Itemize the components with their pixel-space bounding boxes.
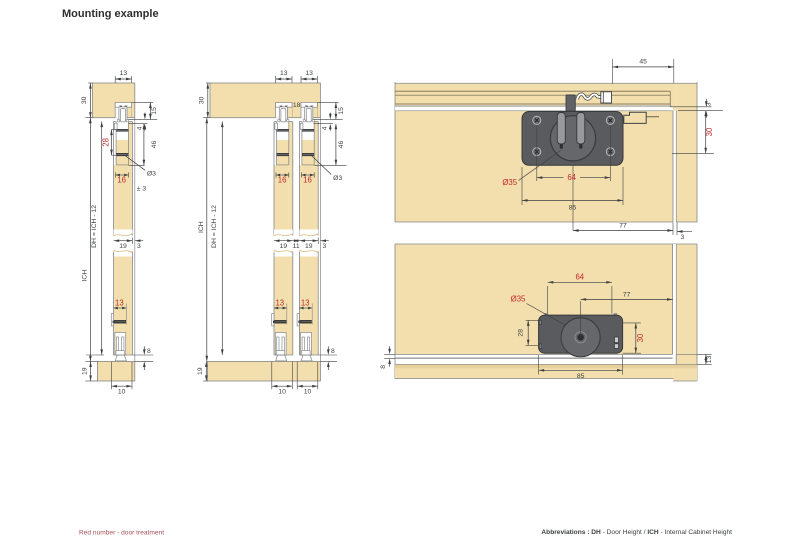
svg-text:DH = ICH - 12: DH = ICH - 12 xyxy=(91,205,98,248)
svg-text:13: 13 xyxy=(301,298,310,307)
svg-text:77: 77 xyxy=(619,222,627,229)
svg-text:30: 30 xyxy=(636,333,645,342)
svg-text:64: 64 xyxy=(575,272,584,281)
svg-text:11: 11 xyxy=(293,243,300,250)
svg-text:13: 13 xyxy=(115,298,124,307)
svg-text:4: 4 xyxy=(322,126,329,130)
svg-text:15: 15 xyxy=(338,107,345,115)
svg-text:4: 4 xyxy=(136,126,143,130)
svg-text:3: 3 xyxy=(323,243,327,250)
svg-text:19: 19 xyxy=(197,367,204,375)
svg-text:19: 19 xyxy=(119,243,127,250)
svg-text:13: 13 xyxy=(706,355,713,363)
svg-text:DH = ICH - 12: DH = ICH - 12 xyxy=(211,205,218,248)
svg-text:28: 28 xyxy=(517,329,524,337)
svg-text:85: 85 xyxy=(577,373,585,380)
svg-text:16: 16 xyxy=(117,176,126,185)
svg-text:85: 85 xyxy=(569,204,577,211)
svg-text:13: 13 xyxy=(120,70,128,77)
svg-text:16: 16 xyxy=(303,176,312,185)
svg-text:46: 46 xyxy=(338,141,345,149)
svg-text:10: 10 xyxy=(304,389,312,396)
svg-text:18: 18 xyxy=(293,102,301,109)
svg-text:10: 10 xyxy=(278,389,286,396)
svg-text:Abbreviations : DH - Door Heig: Abbreviations : DH - Door Height / ICH -… xyxy=(541,529,732,536)
svg-text:13: 13 xyxy=(275,298,284,307)
svg-text:10: 10 xyxy=(118,389,126,396)
svg-text:46: 46 xyxy=(151,141,158,149)
svg-text:8: 8 xyxy=(331,348,335,355)
svg-text:8: 8 xyxy=(147,348,151,355)
svg-text:64: 64 xyxy=(567,173,576,182)
svg-text:± 3: ± 3 xyxy=(137,186,147,193)
svg-text:30: 30 xyxy=(81,96,88,104)
svg-text:3: 3 xyxy=(137,243,141,250)
svg-text:13: 13 xyxy=(280,70,288,77)
svg-text:16: 16 xyxy=(278,176,287,185)
svg-text:ICH: ICH xyxy=(82,270,89,282)
svg-text:19: 19 xyxy=(280,243,288,250)
svg-text:Ø3: Ø3 xyxy=(333,175,342,182)
svg-text:Ø35: Ø35 xyxy=(511,295,526,304)
svg-text:3: 3 xyxy=(705,102,712,106)
svg-text:19: 19 xyxy=(305,243,313,250)
svg-text:28: 28 xyxy=(102,138,111,147)
svg-text:19: 19 xyxy=(81,367,88,375)
svg-text:Ø3: Ø3 xyxy=(147,170,156,177)
svg-text:Red number - door treatment: Red number - door treatment xyxy=(79,529,164,536)
svg-text:30: 30 xyxy=(199,96,206,104)
svg-text:30: 30 xyxy=(705,127,714,136)
svg-text:3: 3 xyxy=(681,234,685,241)
svg-text:13: 13 xyxy=(305,70,313,77)
svg-text:45: 45 xyxy=(639,59,647,66)
svg-text:Ø35: Ø35 xyxy=(502,178,517,187)
svg-text:15: 15 xyxy=(151,107,158,115)
svg-text:ICH: ICH xyxy=(198,221,205,233)
svg-text:8: 8 xyxy=(380,365,387,369)
svg-text:Mounting example: Mounting example xyxy=(62,8,159,20)
svg-text:77: 77 xyxy=(623,291,631,298)
